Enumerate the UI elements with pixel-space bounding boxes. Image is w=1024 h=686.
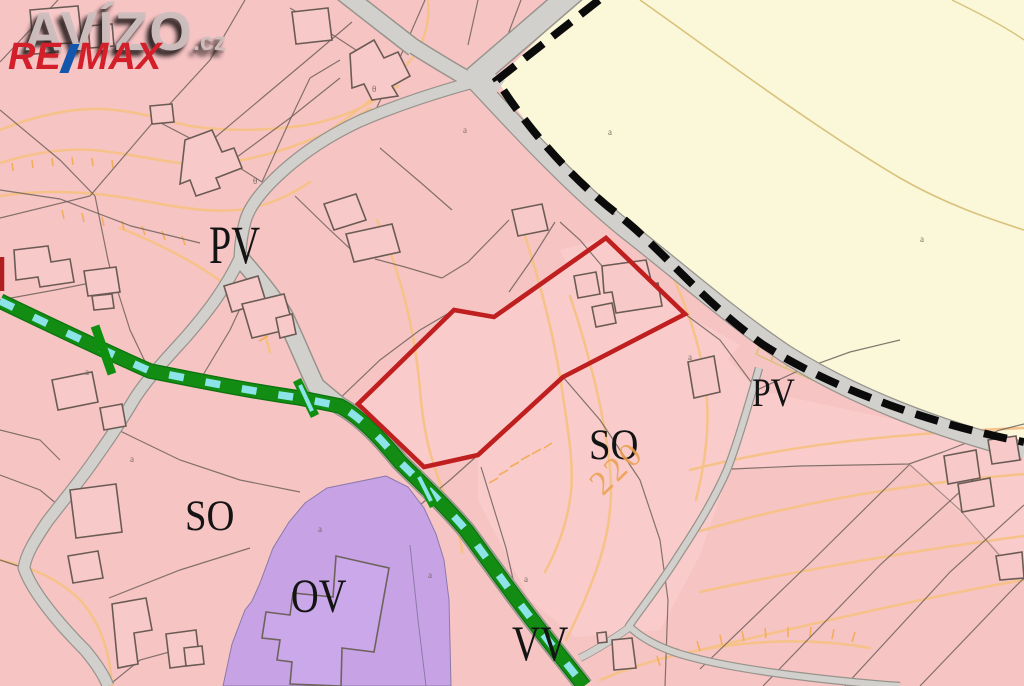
svg-text:a: a	[85, 367, 89, 377]
svg-text:a: a	[920, 234, 924, 244]
svg-text:θ: θ	[253, 176, 257, 186]
svg-text:θ: θ	[372, 84, 376, 94]
svg-text:a: a	[318, 524, 322, 534]
svg-text:SO: SO	[185, 492, 234, 539]
svg-text:a: a	[688, 352, 692, 362]
svg-text:OV: OV	[291, 570, 346, 623]
svg-text:PV: PV	[752, 370, 795, 414]
svg-text:a: a	[428, 570, 432, 580]
svg-text:a: a	[463, 125, 467, 135]
svg-text:a: a	[524, 574, 528, 584]
svg-text:a: a	[608, 127, 612, 137]
svg-text:PV: PV	[209, 216, 260, 275]
svg-text:a: a	[130, 454, 134, 464]
svg-text:VV: VV	[512, 615, 568, 671]
